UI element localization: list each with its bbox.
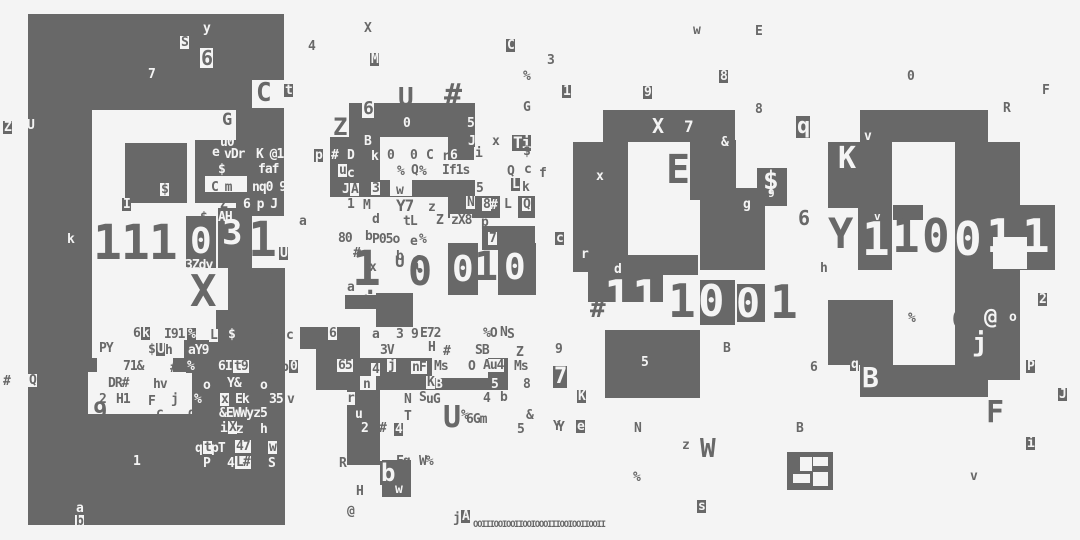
blob-rect	[828, 300, 893, 365]
scatter-glyph: B	[723, 342, 730, 355]
scatter-glyph: 4	[308, 40, 315, 53]
scatter-glyph: R	[1003, 102, 1010, 115]
scatter-glyph: q	[850, 358, 859, 371]
scatter-glyph: z	[682, 439, 689, 452]
scatter-glyph: If1s	[442, 164, 469, 177]
scatter-glyph: gl	[267, 329, 281, 342]
scatter-glyph: e	[576, 420, 585, 433]
scatter-glyph: b	[281, 361, 288, 374]
scatter-glyph: v	[286, 393, 295, 406]
scatter-glyph: #	[379, 422, 386, 435]
scatter-glyph: 6 p J	[243, 198, 277, 211]
scatter-glyph: 6Gm	[466, 413, 486, 426]
scatter-glyph: SB	[475, 344, 489, 357]
scatter-glyph: pT	[211, 442, 225, 455]
scatter-glyph: #	[443, 345, 450, 358]
scatter-glyph: 0	[403, 117, 410, 130]
scatter-glyph: 6	[133, 327, 140, 340]
scatter-glyph: G	[222, 112, 231, 129]
scatter-glyph: U	[279, 247, 288, 260]
captcha-canvas[interactable]: OOIIIOOIOOIIOOIOOOIIIOOIOOIIOOII ZUyS67C…	[0, 0, 1080, 540]
scatter-glyph: 6	[798, 208, 809, 228]
scatter-glyph: @	[983, 307, 997, 329]
scatter-glyph: N	[404, 393, 411, 406]
scatter-glyph: .	[363, 274, 376, 298]
blob-rect	[228, 268, 285, 312]
scatter-glyph: 8	[719, 70, 728, 83]
blob-rect	[860, 365, 988, 397]
grid-icon-pane	[813, 457, 828, 466]
scatter-glyph: 0	[190, 224, 211, 260]
scatter-glyph: O	[284, 214, 291, 227]
scatter-glyph: 111	[93, 219, 177, 267]
scatter-glyph: d	[952, 303, 969, 333]
scatter-glyph: L	[209, 329, 218, 342]
scatter-glyph: j	[971, 330, 988, 356]
scatter-glyph: x	[220, 393, 229, 406]
blob-rect	[28, 110, 92, 525]
scatter-glyph: #	[490, 199, 497, 212]
scatter-glyph: w	[268, 441, 277, 454]
scatter-glyph: H	[356, 485, 363, 498]
scatter-glyph: k	[371, 150, 378, 163]
scatter-glyph: u	[338, 164, 347, 177]
scatter-glyph: W%	[419, 455, 433, 468]
scatter-glyph: U	[156, 343, 165, 356]
scatter-glyph: 5	[467, 117, 474, 130]
scatter-glyph: 9	[643, 86, 652, 99]
scatter-glyph: 7	[148, 68, 155, 81]
scatter-glyph: H1	[116, 393, 130, 406]
scatter-glyph: 8	[371, 394, 378, 407]
scatter-glyph: @	[347, 505, 354, 518]
scatter-glyph: B	[796, 422, 803, 435]
scatter-glyph: G	[666, 188, 673, 201]
scatter-glyph: D	[347, 149, 354, 162]
scatter-glyph: 3V	[380, 344, 394, 357]
scatter-glyph: h	[260, 423, 267, 436]
scatter-glyph: 4	[227, 457, 234, 470]
scatter-glyph: Fq	[396, 455, 410, 468]
grid-icon	[787, 452, 833, 490]
scatter-glyph: N	[466, 196, 475, 209]
scatter-glyph: C	[506, 39, 515, 52]
scatter-glyph: g	[743, 198, 750, 211]
scatter-glyph: A	[350, 183, 359, 196]
scatter-glyph: 71&	[123, 360, 143, 373]
scatter-glyph: 1	[632, 274, 659, 320]
scatter-glyph: 0	[736, 284, 759, 324]
scatter-glyph: X	[364, 22, 371, 35]
scatter-glyph: %	[418, 233, 427, 246]
scatter-glyph: %	[418, 165, 427, 178]
scatter-glyph: 0	[289, 360, 298, 373]
scatter-glyph: 0	[410, 149, 417, 162]
scatter-glyph: j	[387, 359, 396, 372]
scatter-glyph: Q	[522, 198, 531, 211]
blob-rect	[28, 80, 252, 110]
scatter-glyph: 0	[922, 213, 949, 259]
scatter-glyph: K	[577, 390, 586, 403]
scatter-glyph: 8	[523, 378, 530, 391]
scatter-glyph: S	[507, 328, 514, 341]
scatter-glyph: S	[268, 457, 275, 470]
scatter-glyph: k	[141, 327, 150, 340]
scatter-glyph: c	[347, 167, 354, 180]
scatter-glyph: 3	[222, 216, 241, 250]
scatter-glyph: 9	[285, 378, 292, 391]
scatter-glyph: O	[468, 360, 475, 373]
scatter-glyph: i	[1026, 437, 1035, 450]
blob-rect	[860, 110, 988, 142]
scatter-glyph: 6	[489, 149, 496, 162]
blob-rect	[830, 195, 892, 208]
scatter-glyph: o	[1008, 311, 1017, 324]
scatter-glyph: #	[170, 362, 177, 375]
scatter-glyph: %	[908, 312, 915, 325]
scatter-glyph: C m	[211, 181, 231, 194]
scatter-glyph: 9	[411, 328, 418, 341]
scatter-glyph: K	[426, 376, 435, 389]
scatter-glyph: I	[122, 198, 131, 211]
scatter-glyph: #	[590, 296, 605, 322]
scatter-glyph: h	[165, 344, 172, 357]
scatter-glyph: Q	[28, 374, 37, 387]
scatter-glyph: nF	[411, 361, 427, 374]
scatter-glyph: hv	[153, 378, 167, 391]
blob-rect	[955, 142, 1020, 208]
scatter-glyph: 3	[547, 54, 554, 67]
scatter-glyph: b	[380, 461, 395, 485]
scatter-glyph: DR#	[108, 377, 128, 390]
scatter-glyph: X	[190, 270, 216, 314]
scatter-glyph: e	[410, 235, 417, 248]
scatter-glyph: r	[442, 150, 449, 163]
scatter-glyph: i	[474, 147, 483, 160]
scatter-glyph: 0	[954, 216, 981, 262]
scatter-glyph: R	[339, 457, 346, 470]
scatter-glyph: 1	[562, 85, 571, 98]
scatter-glyph: B	[435, 378, 442, 391]
scatter-glyph: vDr	[224, 148, 244, 161]
scatter-glyph: $	[148, 343, 155, 356]
scatter-glyph: U	[27, 119, 34, 132]
scatter-glyph: P	[203, 457, 210, 470]
scatter-glyph: tL	[403, 215, 417, 228]
scatter-glyph: Y7	[395, 198, 414, 214]
scatter-glyph: nq0 9	[252, 181, 286, 194]
scatter-glyph: X	[652, 116, 663, 136]
scatter-glyph: e	[285, 346, 292, 359]
scatter-glyph: F	[148, 395, 155, 408]
scatter-glyph: 9	[768, 188, 774, 199]
grid-icon-pane	[813, 472, 828, 486]
scatter-glyph: Y	[553, 420, 560, 433]
scatter-glyph: w	[394, 483, 403, 496]
scatter-glyph: k	[521, 181, 530, 194]
scatter-glyph: a	[371, 328, 380, 341]
scatter-glyph: c	[523, 163, 532, 176]
scatter-glyph: B	[862, 364, 878, 392]
scatter-glyph: 6	[328, 327, 337, 340]
scatter-glyph: 0	[504, 250, 525, 286]
scatter-glyph: Y&	[227, 377, 241, 390]
scatter-glyph: Ms	[514, 360, 528, 373]
scatter-glyph: 1	[986, 213, 1013, 259]
scatter-glyph: %	[523, 70, 530, 83]
scatter-glyph: 1	[474, 247, 497, 287]
scatter-glyph: N	[634, 422, 641, 435]
scatter-glyph: 7	[553, 366, 567, 388]
scatter-glyph: Q	[411, 164, 418, 177]
barcode-strip: OOIIIOOIOOIIOOIOOOIIIOOIOOIIOOII	[473, 521, 605, 530]
scatter-glyph: v	[874, 211, 880, 222]
scatter-glyph: 9	[555, 343, 562, 356]
scatter-glyph: $	[217, 163, 226, 176]
scatter-glyph: p	[481, 216, 488, 229]
scatter-glyph: Z	[516, 346, 523, 359]
scatter-glyph: y	[203, 22, 210, 35]
scatter-glyph: 8	[755, 103, 762, 116]
scatter-glyph: Z	[436, 214, 443, 227]
scatter-glyph: U	[443, 403, 460, 433]
scatter-glyph: z	[428, 201, 435, 214]
scatter-glyph: Z	[3, 121, 12, 134]
scatter-glyph: 1	[604, 274, 631, 320]
scatter-glyph: uG	[426, 393, 440, 406]
scatter-glyph: c	[555, 232, 564, 245]
scatter-glyph: 1	[346, 198, 355, 211]
scatter-glyph: h	[820, 262, 827, 275]
scatter-glyph: zX8	[450, 214, 472, 227]
scatter-glyph: a	[298, 215, 307, 228]
scatter-glyph: q	[195, 442, 202, 455]
scatter-glyph: B	[364, 135, 371, 148]
blob-rect	[700, 188, 765, 270]
scatter-glyph: &EWWyz5	[219, 407, 267, 420]
scatter-glyph: 0	[907, 70, 914, 83]
scatter-glyph: x	[491, 135, 500, 148]
scatter-glyph: j	[171, 393, 178, 406]
scatter-glyph: #	[3, 375, 10, 388]
blob-rect	[28, 14, 284, 80]
scatter-glyph: aY9	[188, 344, 208, 357]
scatter-glyph: 1	[892, 213, 919, 259]
scatter-glyph: o	[203, 379, 210, 392]
scatter-glyph: W	[700, 436, 715, 462]
scatter-glyph: d	[371, 213, 380, 226]
scatter-glyph: 4	[482, 392, 491, 405]
scatter-glyph: w	[693, 24, 700, 37]
scatter-glyph: %	[186, 360, 195, 373]
scatter-glyph: t9	[233, 360, 249, 373]
scatter-glyph: M	[370, 53, 379, 66]
scatter-glyph: 65	[337, 359, 353, 372]
scatter-glyph: faf	[258, 163, 278, 176]
scatter-glyph: v	[970, 470, 977, 483]
scatter-glyph: Ek	[235, 393, 249, 406]
scatter-glyph: q	[796, 116, 810, 138]
scatter-glyph: T	[404, 410, 411, 423]
scatter-glyph: Ms	[434, 360, 448, 373]
scatter-glyph: 35	[269, 393, 283, 406]
scatter-glyph: x	[596, 170, 603, 183]
scatter-glyph: M	[363, 199, 370, 212]
scatter-glyph: C	[426, 149, 433, 162]
scatter-glyph: e	[211, 146, 220, 159]
scatter-glyph: K @1	[256, 148, 283, 161]
scatter-glyph: E72	[419, 327, 441, 340]
scatter-glyph: 9	[93, 399, 106, 423]
scatter-glyph: 0	[698, 280, 724, 324]
scatter-glyph: 1	[668, 278, 695, 324]
scatter-glyph: J	[1058, 388, 1067, 401]
scatter-glyph: 6	[200, 48, 213, 68]
scatter-glyph: 0	[408, 252, 431, 292]
scatter-glyph: 6	[810, 361, 817, 374]
scatter-glyph: #	[331, 149, 338, 162]
scatter-glyph: n	[363, 378, 370, 391]
blob-rect	[605, 330, 700, 398]
scatter-glyph: E	[666, 150, 689, 190]
scatter-glyph: F	[1042, 84, 1049, 97]
blob-rect	[603, 110, 735, 142]
scatter-glyph: 1	[1022, 213, 1049, 259]
scatter-glyph: c	[285, 329, 294, 342]
scatter-glyph: u	[355, 408, 362, 421]
scatter-glyph: 2	[1038, 293, 1047, 306]
scatter-glyph: f	[539, 167, 546, 180]
scatter-glyph: 0	[452, 252, 473, 288]
scatter-glyph: 8	[475, 393, 482, 406]
scatter-glyph: 5	[517, 423, 524, 436]
scatter-glyph: p	[314, 149, 323, 162]
scatter-glyph: E	[755, 25, 762, 38]
scatter-glyph: k	[66, 233, 75, 246]
blob-rect	[376, 293, 413, 327]
blob-rect	[347, 440, 380, 465]
scatter-glyph: 6	[450, 149, 457, 162]
scatter-glyph: Y	[828, 213, 852, 255]
scatter-glyph: S	[180, 36, 189, 49]
scatter-glyph: j	[453, 512, 460, 525]
scatter-glyph: $	[523, 145, 530, 158]
grid-icon-pane	[793, 474, 810, 483]
scatter-glyph: L	[511, 178, 520, 191]
scatter-glyph: Au4	[482, 359, 504, 372]
scatter-glyph: L#	[235, 456, 251, 469]
scatter-glyph: &	[526, 409, 533, 422]
scatter-glyph: &	[721, 136, 728, 149]
scatter-glyph: 5	[476, 182, 483, 195]
scatter-glyph: c	[363, 362, 370, 375]
scatter-glyph: 1	[248, 216, 276, 264]
scatter-glyph: 2	[361, 422, 368, 435]
scatter-glyph: #	[444, 81, 461, 111]
scatter-glyph: i	[220, 422, 227, 435]
scatter-glyph: $	[227, 328, 236, 341]
scatter-glyph: o	[260, 379, 267, 392]
scatter-glyph: 1	[770, 279, 797, 325]
scatter-glyph: b	[75, 515, 84, 528]
scatter-glyph: %	[396, 165, 405, 178]
scatter-glyph: 80	[338, 232, 352, 245]
scatter-glyph: 5	[641, 356, 648, 369]
grid-icon-pane	[800, 457, 812, 471]
scatter-glyph: 7	[684, 119, 693, 135]
scatter-glyph: d	[188, 407, 195, 420]
scatter-glyph: t	[284, 84, 293, 97]
scatter-glyph: 4	[371, 363, 380, 376]
scatter-glyph: K	[838, 144, 855, 174]
scatter-glyph: Z	[333, 115, 346, 139]
scatter-glyph: P	[1026, 360, 1035, 373]
scatter-glyph: $	[160, 183, 169, 196]
scatter-glyph: 1	[133, 455, 140, 468]
scatter-glyph: C	[256, 80, 271, 106]
scatter-glyph: H	[427, 341, 436, 354]
scatter-glyph: 6I	[217, 360, 233, 373]
scatter-glyph: %	[194, 393, 201, 406]
scatter-glyph: v	[864, 130, 871, 143]
scatter-glyph: b	[499, 391, 508, 404]
scatter-glyph: c	[156, 407, 163, 420]
scatter-glyph: PY	[99, 342, 113, 355]
scatter-glyph: r	[346, 392, 355, 405]
scatter-glyph: 3	[371, 182, 380, 195]
scatter-glyph: 4	[394, 423, 403, 436]
scatter-glyph: L	[504, 198, 511, 211]
scatter-glyph: A	[461, 510, 470, 523]
scatter-glyph: F	[986, 398, 1003, 428]
scatter-glyph: 3	[396, 328, 403, 341]
scatter-glyph: 6	[362, 100, 374, 118]
scatter-glyph: 47	[235, 440, 251, 453]
scatter-glyph: %	[187, 328, 196, 341]
scatter-glyph: I91	[164, 328, 184, 341]
blob-rect	[125, 143, 187, 203]
scatter-glyph: r	[580, 248, 589, 261]
scatter-glyph: 0	[387, 149, 394, 162]
scatter-glyph: G	[523, 101, 530, 114]
scatter-glyph: J	[342, 183, 349, 196]
scatter-glyph: %O	[483, 327, 497, 340]
scatter-glyph: z	[236, 423, 243, 436]
scatter-glyph: U	[398, 85, 413, 111]
scatter-glyph: %	[633, 471, 640, 484]
scatter-glyph: 5	[491, 378, 498, 391]
scatter-glyph: s	[697, 500, 706, 513]
